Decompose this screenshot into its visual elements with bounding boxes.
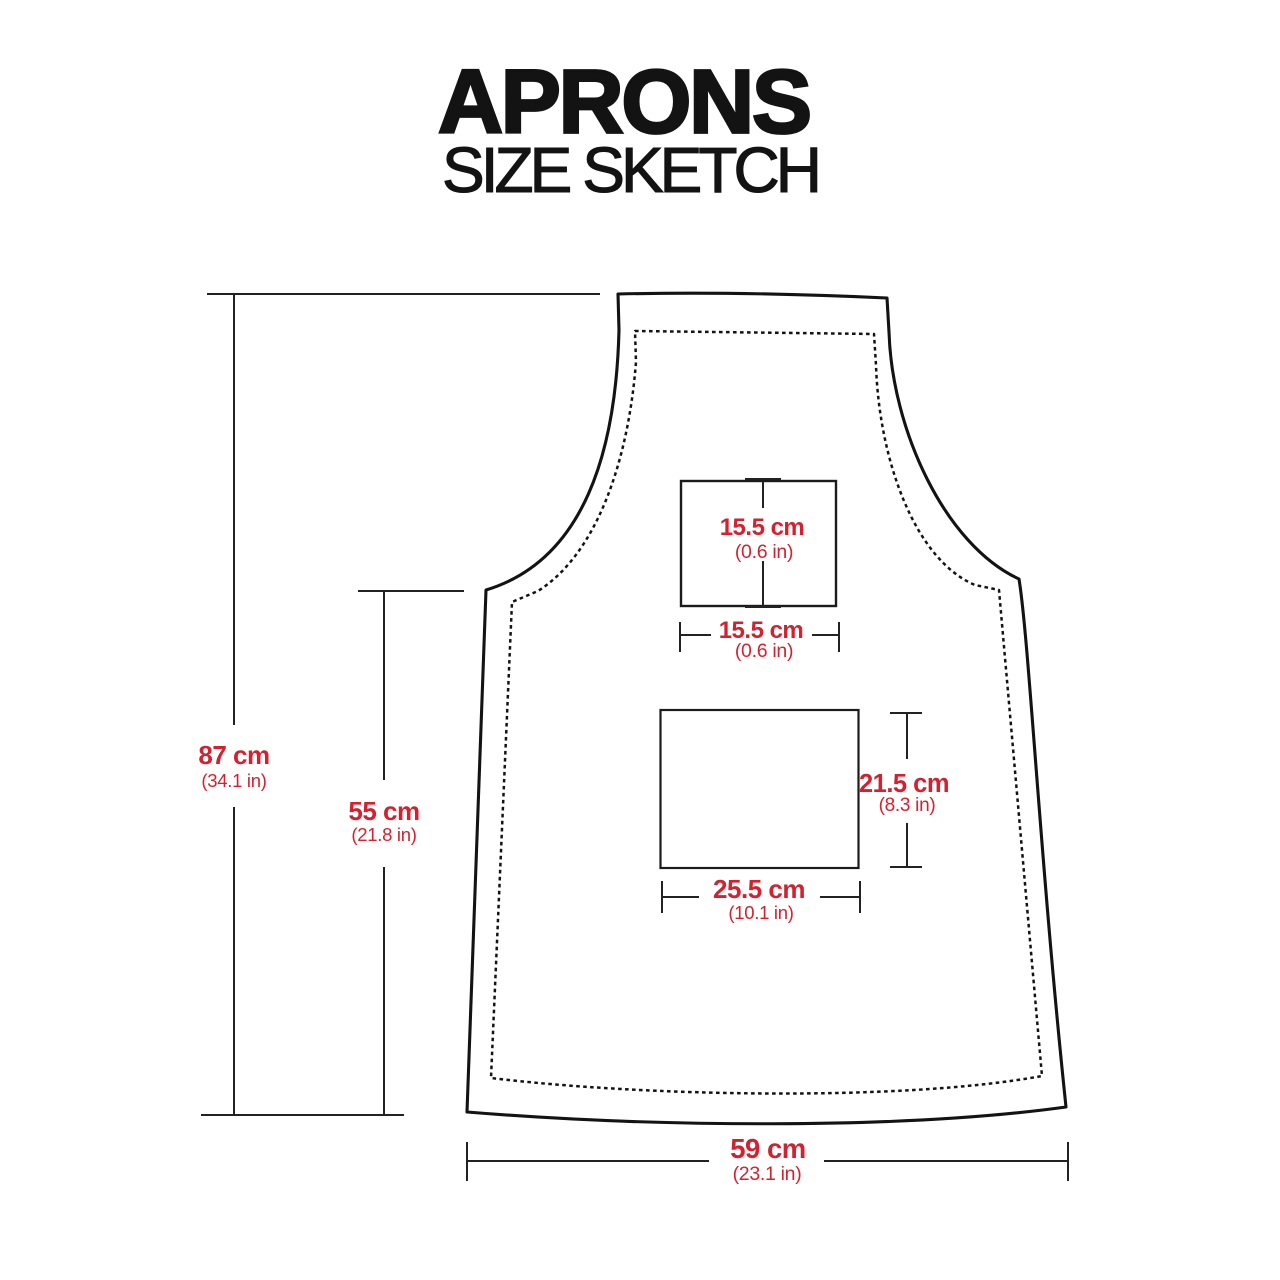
svg-text:(34.1 in): (34.1 in) — [201, 770, 266, 791]
svg-text:(0.6 in): (0.6 in) — [735, 640, 793, 662]
svg-text:(8.3 in): (8.3 in) — [879, 795, 936, 816]
svg-text:(0.6 in): (0.6 in) — [735, 541, 793, 563]
svg-text:(23.1 in): (23.1 in) — [733, 1163, 802, 1185]
svg-text:21.5 cm: 21.5 cm — [859, 770, 949, 798]
svg-text:25.5 cm: 25.5 cm — [713, 874, 805, 904]
svg-text:59 cm: 59 cm — [730, 1133, 805, 1164]
svg-text:(21.8 in): (21.8 in) — [351, 824, 416, 845]
svg-text:SIZE SKETCH: SIZE SKETCH — [442, 134, 822, 206]
svg-text:(10.1 in): (10.1 in) — [728, 902, 793, 923]
svg-text:55 cm: 55 cm — [348, 796, 419, 826]
svg-text:87 cm: 87 cm — [198, 740, 269, 770]
svg-text:15.5 cm: 15.5 cm — [720, 514, 805, 541]
